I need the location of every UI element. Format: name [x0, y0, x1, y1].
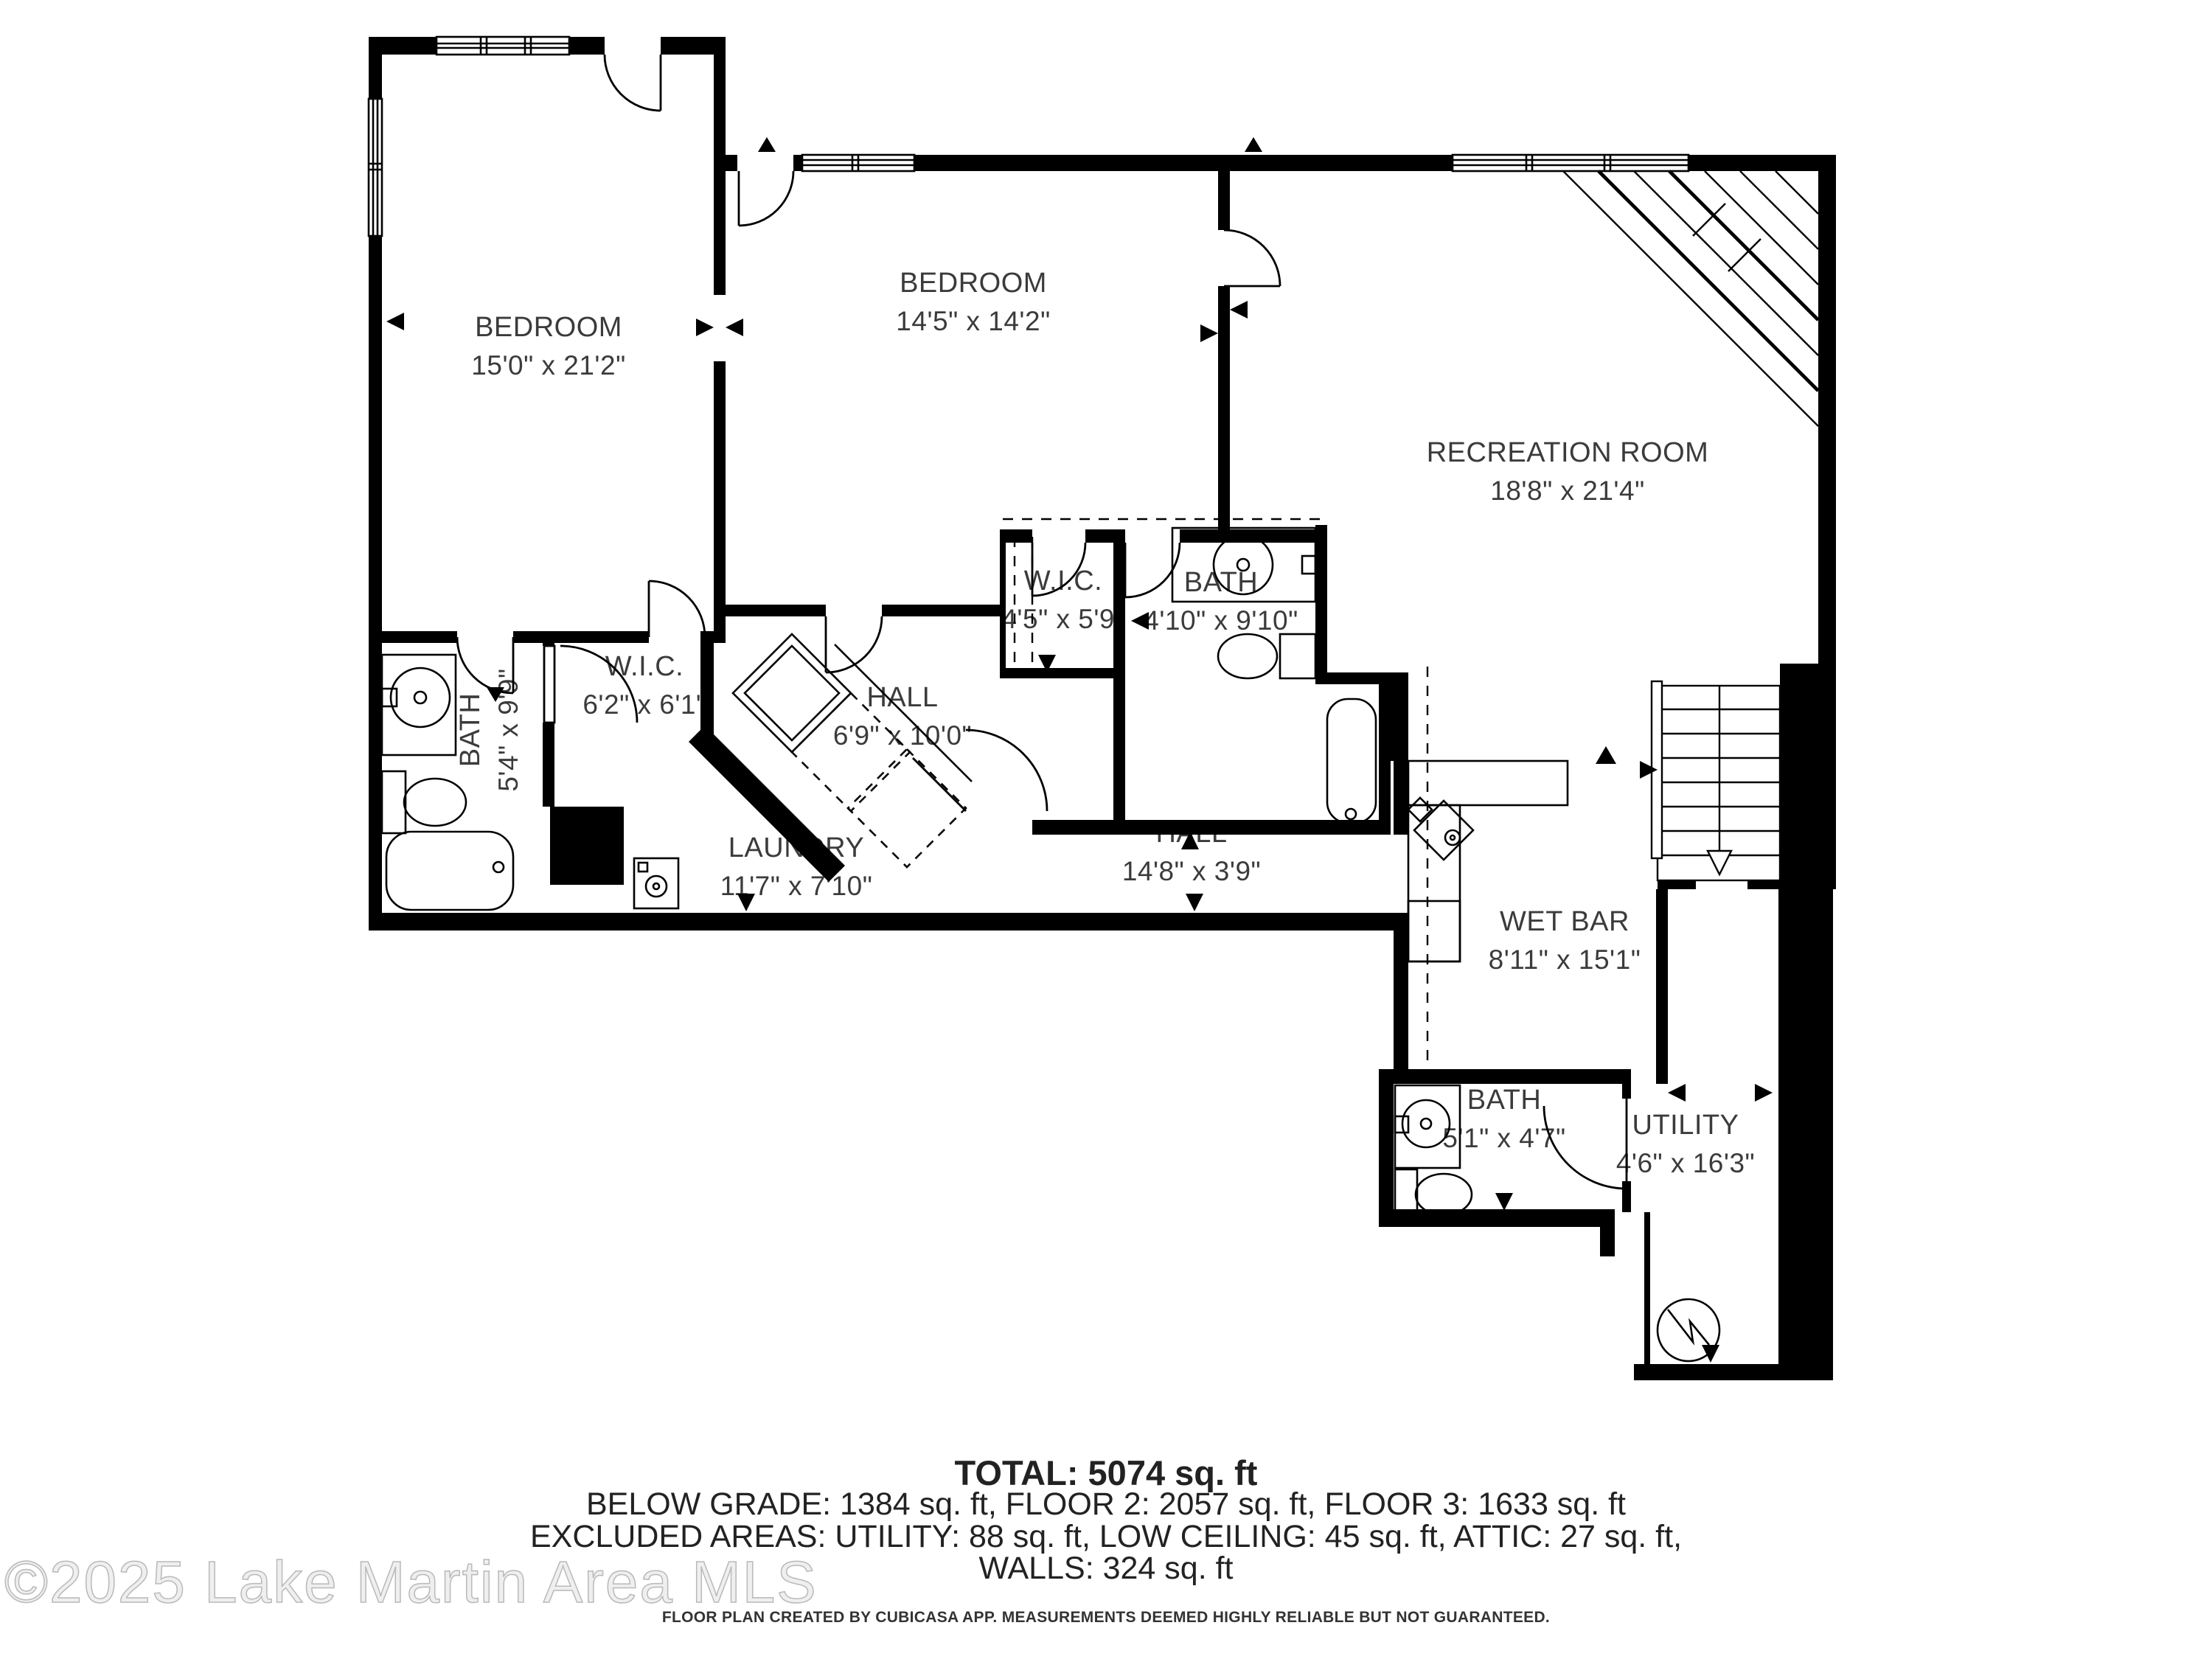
disclaimer-text: FLOOR PLAN CREATED BY CUBICASA APP. MEAS…	[0, 1609, 2212, 1627]
room-label-hall-upper: HALL 6'9" x 10'0"	[833, 678, 972, 755]
room-label-bath-left: BATH 5'4" x 9'9"	[451, 668, 528, 791]
room-dims: 4'5" x 5'9"	[1001, 600, 1124, 639]
room-label-recreation-room: RECREATION ROOM 18'8" x 21'4"	[1427, 434, 1709, 510]
room-name: BATH	[1442, 1081, 1565, 1119]
room-label-laundry: LAUNDRY 11'7" x 7'10"	[720, 829, 873, 905]
room-labels-layer: BEDROOM 15'0" x 21'2" BEDROOM 14'5" x 14…	[0, 0, 2212, 1659]
room-name: HALL	[1122, 814, 1261, 852]
excluded-areas-text: EXCLUDED AREAS: UTILITY: 88 sq. ft, LOW …	[0, 1519, 2212, 1555]
room-dims: 14'5" x 14'2"	[896, 302, 1050, 341]
room-name: BEDROOM	[471, 308, 625, 347]
room-name: RECREATION ROOM	[1427, 434, 1709, 472]
room-name: UTILITY	[1616, 1106, 1755, 1144]
room-dims: 6'2" x 6'1"	[582, 686, 706, 724]
room-dims: 14'8" x 3'9"	[1122, 852, 1261, 891]
room-dims: 6'9" x 10'0"	[833, 717, 972, 755]
room-label-utility: UTILITY 4'6" x 16'3"	[1616, 1106, 1755, 1183]
room-label-bath-lower: BATH 5'1" x 4'7"	[1442, 1081, 1565, 1158]
room-name: HALL	[833, 678, 972, 717]
room-name: BATH	[1144, 563, 1298, 602]
room-dims: 5'1" x 4'7"	[1442, 1119, 1565, 1158]
room-dims: 15'0" x 21'2"	[471, 347, 625, 385]
room-name: WET BAR	[1489, 902, 1641, 941]
room-label-bedroom-2: BEDROOM 14'5" x 14'2"	[896, 264, 1050, 341]
room-name: W.I.C.	[1001, 562, 1124, 600]
room-dims: 4'10" x 9'10"	[1144, 602, 1298, 640]
room-name: LAUNDRY	[720, 829, 873, 867]
room-label-wic-left: W.I.C. 6'2" x 6'1"	[582, 647, 706, 724]
room-label-wic-center: W.I.C. 4'5" x 5'9"	[1001, 562, 1124, 639]
room-name: W.I.C.	[582, 647, 706, 686]
walls-area-text: WALLS: 324 sq. ft	[0, 1551, 2212, 1587]
floor-plan-page: ©2025 Lake Martin Area MLS BEDROOM 15'0"…	[0, 0, 2212, 1659]
room-label-wet-bar: WET BAR 8'11" x 15'1"	[1489, 902, 1641, 979]
room-dims: 5'4" x 9'9"	[490, 668, 528, 791]
room-dims: 8'11" x 15'1"	[1489, 941, 1641, 979]
room-name: BATH	[451, 668, 490, 791]
room-dims: 4'6" x 16'3"	[1616, 1144, 1755, 1183]
room-label-bedroom-1: BEDROOM 15'0" x 21'2"	[471, 308, 625, 385]
room-dims: 18'8" x 21'4"	[1427, 472, 1709, 510]
room-dims: 11'7" x 7'10"	[720, 867, 873, 905]
room-label-hall-lower: HALL 14'8" x 3'9"	[1122, 814, 1261, 891]
room-label-bath-center: BATH 4'10" x 9'10"	[1144, 563, 1298, 640]
room-name: BEDROOM	[896, 264, 1050, 302]
floor-areas-text: BELOW GRADE: 1384 sq. ft, FLOOR 2: 2057 …	[0, 1486, 2212, 1523]
